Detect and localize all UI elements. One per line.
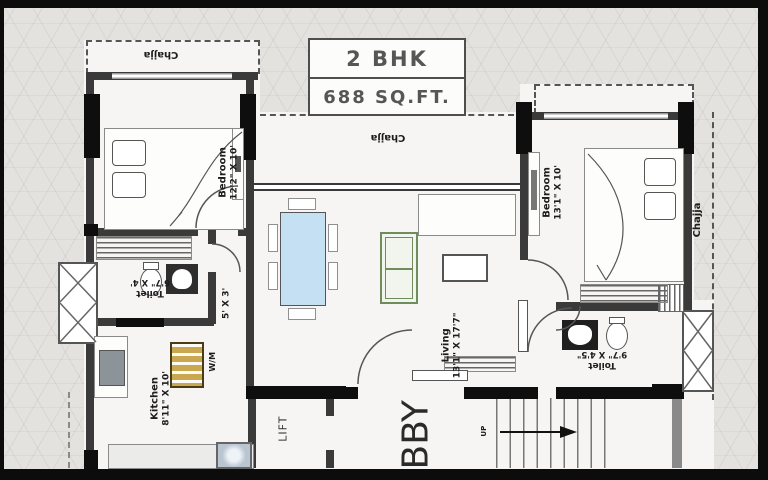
wall bbox=[246, 232, 254, 388]
column bbox=[84, 94, 100, 158]
chajja-line-bottom-left bbox=[68, 392, 70, 468]
washing-machine bbox=[170, 342, 204, 388]
frame-right bbox=[758, 0, 768, 480]
dining-table bbox=[280, 212, 326, 306]
chajja-label-center: Chajja bbox=[358, 131, 418, 143]
passage-door-leaf bbox=[518, 300, 528, 352]
passage-dims-label: 5' X 3' bbox=[222, 278, 233, 328]
wall-lift-right bbox=[326, 398, 334, 416]
room-label-living: Living 13'1" X 17'7" bbox=[441, 300, 464, 390]
stair-wall-right bbox=[672, 398, 682, 468]
kitchen-sink-blue bbox=[216, 442, 252, 469]
room-name: Living bbox=[441, 328, 453, 362]
dining-chair bbox=[328, 262, 338, 290]
room-dims: 6'7" X 4' bbox=[130, 277, 170, 287]
room-label-kitchen: Kitchen 8'11" X 10' bbox=[150, 357, 173, 439]
wall-lift-right bbox=[326, 450, 334, 468]
wall-black-segment bbox=[116, 318, 164, 327]
room-label-bedroom-right: Bedroom 13'1" X 10' bbox=[542, 150, 565, 234]
duct-right bbox=[682, 310, 714, 392]
column bbox=[622, 387, 656, 399]
wall bbox=[208, 272, 216, 324]
wardrobe-left bbox=[96, 236, 192, 260]
frame-bottom bbox=[0, 469, 768, 480]
dining-chair bbox=[288, 198, 316, 210]
wall bbox=[208, 228, 216, 244]
floor-plan: 2 BHK 688 SQ.FT. bbox=[0, 0, 768, 480]
column bbox=[516, 102, 532, 154]
sofa bbox=[418, 194, 516, 236]
wall-lift-top bbox=[246, 386, 346, 399]
wall-black-segment bbox=[652, 384, 684, 399]
wall-toilet-right-top bbox=[556, 302, 672, 311]
pillow bbox=[644, 158, 676, 186]
title-box: 2 BHK 688 SQ.FT. bbox=[308, 38, 466, 116]
wm-label: W/M bbox=[208, 345, 218, 379]
wall-living-top bbox=[254, 183, 520, 191]
room-name: Kitchen bbox=[150, 377, 162, 420]
cabinet-green bbox=[380, 232, 418, 304]
stair-treads bbox=[496, 398, 606, 468]
frame-left bbox=[0, 0, 4, 480]
dining-chair bbox=[328, 224, 338, 252]
column bbox=[84, 450, 98, 469]
window-bedroom-left bbox=[112, 73, 232, 79]
column bbox=[502, 387, 536, 399]
wc-right-tank bbox=[609, 317, 625, 324]
pillow bbox=[112, 140, 146, 166]
chajja-label-top-left: Chajja bbox=[131, 48, 191, 60]
plan-area-label: 688 SQ.FT. bbox=[310, 77, 464, 116]
chajja-outline-top-right bbox=[534, 84, 694, 114]
dining-chair bbox=[288, 308, 316, 320]
plan-type-label: 2 BHK bbox=[310, 40, 464, 77]
up-label: UP bbox=[480, 421, 488, 441]
dining-chair bbox=[268, 262, 278, 290]
frame-top bbox=[0, 0, 768, 8]
room-dims: 13'1" X 17'7" bbox=[453, 313, 464, 379]
lift-label: LIFT bbox=[276, 401, 289, 457]
room-label-toilet-right: Toilet 9'7" X 4'5" bbox=[567, 349, 637, 370]
wc-right bbox=[606, 322, 628, 350]
room-label-toilet-left: Toilet 6'7" X 4' bbox=[118, 277, 182, 298]
room-name: Toilet bbox=[136, 287, 164, 298]
wardrobe-right bbox=[580, 284, 668, 303]
wc-left-tank bbox=[143, 262, 159, 270]
room-label-bedroom-left: Bedroom 12'2" X 10' bbox=[218, 127, 241, 217]
bedside-unit-right-fill bbox=[531, 170, 537, 210]
room-dims: 8'11" X 10' bbox=[162, 371, 173, 426]
window-bedroom-right bbox=[544, 113, 668, 119]
room-dims: 9'7" X 4'5" bbox=[577, 349, 627, 359]
column bbox=[84, 224, 98, 236]
room-name: Bedroom bbox=[218, 147, 230, 198]
kitchen-sink-dark bbox=[99, 350, 125, 386]
duct-left bbox=[58, 262, 98, 344]
room-name: Toilet bbox=[588, 359, 616, 370]
room-dims: 13'1" X 10' bbox=[554, 165, 565, 220]
chajja-label-right: Chajja bbox=[692, 192, 704, 248]
pillow bbox=[644, 192, 676, 220]
room-name: Bedroom bbox=[542, 167, 554, 218]
pillow bbox=[112, 172, 146, 198]
column bbox=[678, 102, 694, 154]
washbasin-right-bowl bbox=[568, 325, 592, 345]
center-table bbox=[442, 254, 488, 282]
room-dims: 12'2" X 10' bbox=[230, 145, 241, 200]
dining-chair bbox=[268, 224, 278, 252]
